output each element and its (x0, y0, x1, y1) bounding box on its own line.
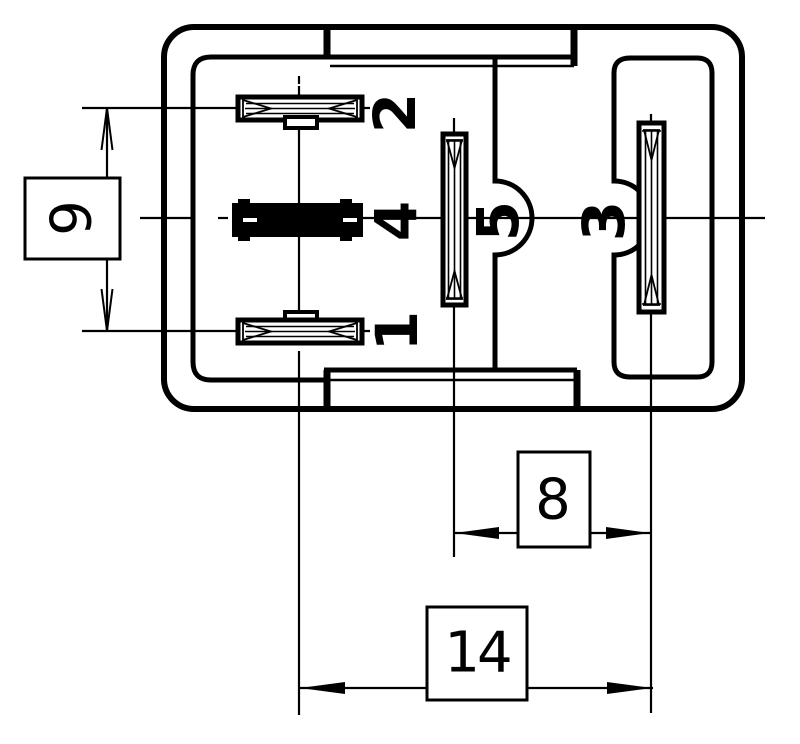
pin-2-label: 2 (361, 93, 429, 133)
dim9-value: 9 (40, 200, 105, 236)
pin-4-terminal: 4 (232, 199, 430, 241)
pin-4-flange-tr (340, 199, 352, 204)
dimension-14: 14 (299, 607, 653, 700)
dim14-arrow-right (607, 682, 652, 694)
pin-5-label: 5 (464, 201, 532, 241)
pin-2-terminal: 2 (238, 93, 429, 133)
top-notch (324, 28, 574, 66)
pin-4-flange-tl (238, 199, 250, 204)
dim14-arrow-left (300, 682, 345, 694)
pin-4-highlight-left (243, 218, 257, 222)
pin-4-flange-bl (238, 236, 250, 241)
bottom-notch (324, 370, 577, 408)
dim14-value: 14 (444, 621, 510, 686)
pin-3-label: 3 (570, 201, 638, 241)
pin-1-label: 1 (363, 311, 431, 351)
pin-3-terminal: 3 (570, 123, 664, 312)
pin-2-lock-tab (285, 117, 317, 128)
pin-4-flange-br (340, 236, 352, 241)
dim8-arrow-left (455, 527, 499, 539)
dimension-9: 9 (25, 108, 120, 331)
pin-4-label: 4 (362, 201, 430, 241)
relay-pinout-drawing: 2 1 4 5 (0, 0, 800, 744)
dim8-value: 8 (535, 468, 571, 533)
pin-5-terminal: 5 (443, 134, 532, 305)
pin-4-highlight-right (343, 218, 357, 222)
pin-1-terminal: 1 (238, 311, 431, 351)
dimension-8: 8 (454, 452, 651, 547)
drawing-canvas: 2 1 4 5 (0, 0, 800, 744)
dim8-arrow-right (606, 527, 650, 539)
